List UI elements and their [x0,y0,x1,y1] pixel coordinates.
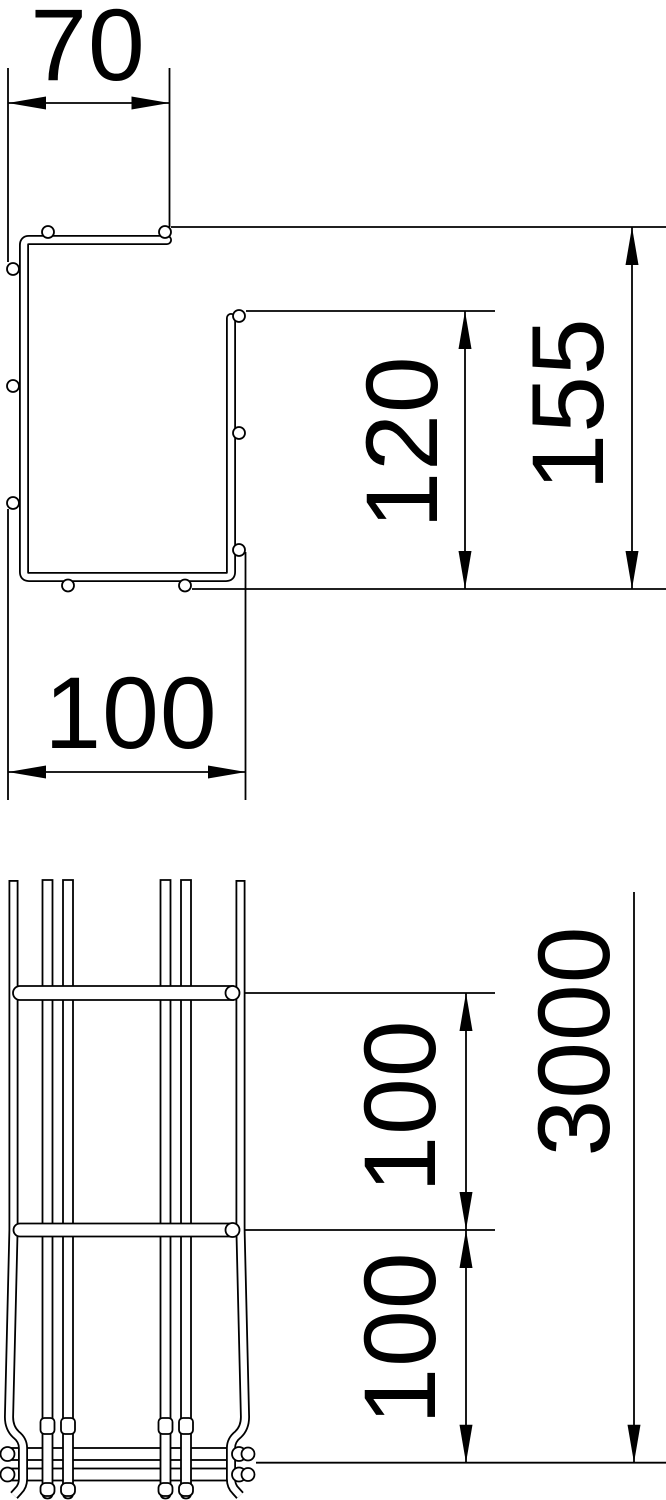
wire-circle [233,310,245,322]
dim-label-100-bottom: 100 [44,656,217,770]
rung-end-circle [226,1223,240,1237]
dim-label-100-lower: 100 [343,1251,457,1424]
dimension-inner-height: 120 [345,311,472,589]
arrow-up-icon [460,993,473,1031]
arrow-down-icon [460,1192,473,1230]
arrow-up-icon [626,227,639,265]
technical-drawing-canvas: 70 120 155 100 [0,0,666,1500]
wire-circle [7,497,19,509]
wire-cross-section-circles [7,226,245,592]
wire-circle [7,380,19,392]
dimension-width-bottom: 100 [8,656,246,779]
collar [179,1418,193,1434]
wire-circle [233,544,245,556]
end-bar [7,1469,236,1481]
bar-cap-circle [242,1468,255,1481]
drawing-svg: 70 120 155 100 [0,0,666,1500]
collar [159,1483,173,1496]
rung [13,986,233,1000]
side-wire [161,880,171,1499]
dim-label-155: 155 [511,317,625,490]
wire-circle [233,427,245,439]
arrow-down-icon [626,551,639,589]
dimension-overall-height: 155 [511,227,639,589]
wire-circle [179,580,191,592]
dimension-length: 3000 [517,892,641,1463]
bar-cap-circle [1,1447,15,1461]
arrow-up-icon [459,311,472,349]
side-view: 100 100 3000 [1,880,666,1499]
collar [41,1483,55,1496]
wire-circle [7,263,19,275]
arrow-down-icon [628,1425,641,1463]
arrow-down-icon [460,1425,473,1463]
wire-circle [42,226,54,238]
dim-label-70: 70 [30,0,145,102]
wire-circle [62,580,74,592]
arrow-left-icon [8,766,46,779]
longitudinal-wires [9,880,246,1499]
dimension-rung-spacing-lower: 100 [343,1230,473,1463]
cross-section-view: 70 120 155 100 [7,0,666,800]
collar [179,1483,193,1496]
collar [61,1483,75,1496]
rung [14,1224,234,1237]
collar [159,1418,173,1434]
side-wire [63,880,73,1499]
arrow-up-icon [460,1230,473,1268]
side-wire [181,880,191,1499]
bar-cap-circle [1,1468,15,1482]
dimension-rung-spacing-upper: 100 [343,993,473,1230]
dim-label-120: 120 [345,355,459,528]
bar-cap-circle [242,1448,255,1461]
arrow-down-icon [459,551,472,589]
end-bar [7,1448,236,1460]
dim-label-100-upper: 100 [343,1019,457,1192]
rung-end-circle [226,986,240,1000]
dim-label-3000: 3000 [517,926,631,1157]
collar [61,1418,75,1434]
side-wire [43,880,53,1499]
collar [41,1418,55,1434]
profile-outline [24,240,231,577]
end-bars [7,1448,236,1481]
wire-circle [159,226,171,238]
dimension-width-top: 70 [8,0,170,110]
